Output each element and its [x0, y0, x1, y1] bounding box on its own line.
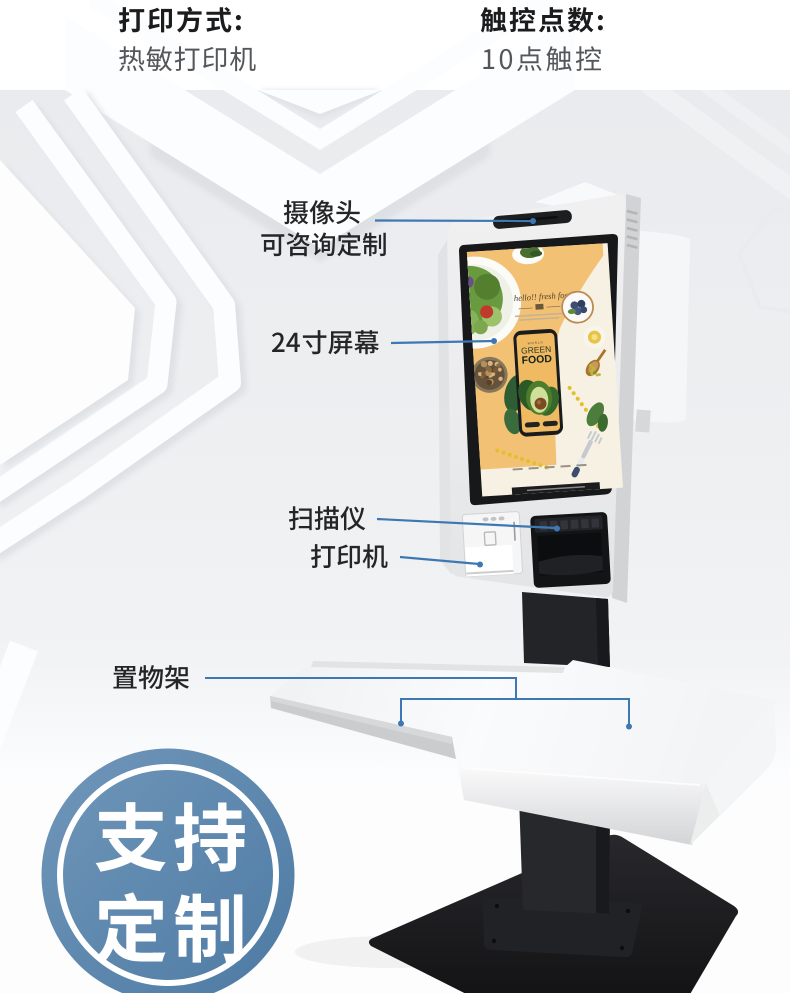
svg-text:FOOD: FOOD: [521, 353, 552, 367]
